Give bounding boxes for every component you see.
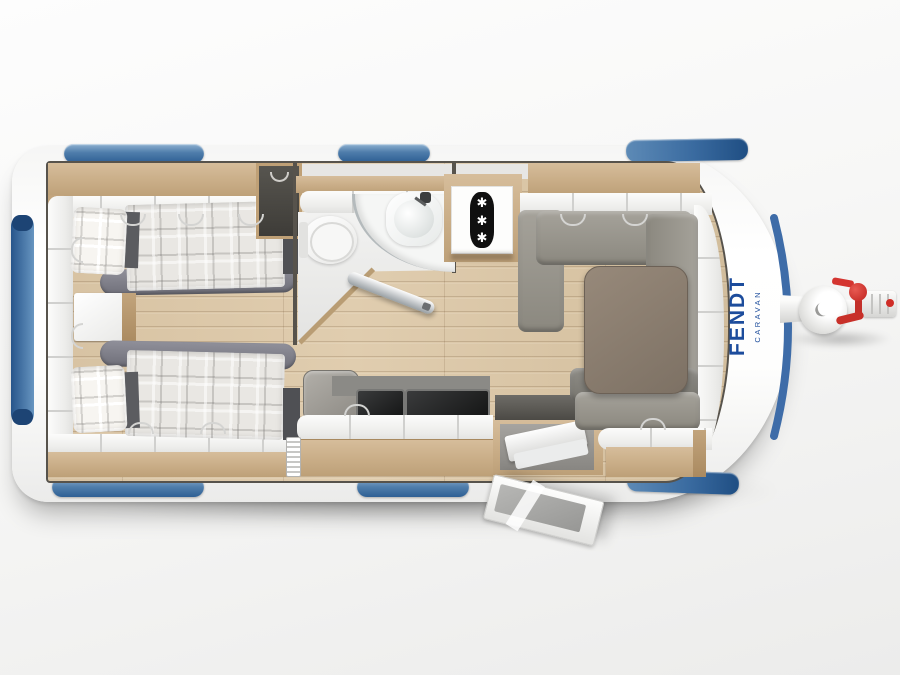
- kitchen-base-cabinet: [297, 439, 493, 476]
- dinette-wood-divider: [693, 430, 706, 477]
- brand-logo: FENDT CARAVAN: [726, 264, 762, 368]
- fridge-freezer-badge: ✱ ✱ ✱: [470, 192, 494, 248]
- bathroom-door-handle: [421, 302, 431, 311]
- dinette-overhead-cabinet: [528, 163, 700, 197]
- front-blue-trim: [768, 212, 804, 442]
- bedroom-overhead-cabinet: [48, 163, 260, 199]
- window-top-middle: [338, 144, 430, 162]
- dinette-bench-bottom: [575, 392, 700, 430]
- brand-name: FENDT: [726, 276, 750, 356]
- jockey-handle-knob: [849, 283, 867, 301]
- dinette-table: [584, 266, 688, 394]
- kitchen-locker-band: [297, 415, 493, 441]
- coupling-tip: [886, 299, 894, 307]
- snowflake-icon: ✱: [477, 231, 488, 244]
- window-top-right: [626, 138, 748, 162]
- toilet-seat: [310, 222, 354, 262]
- brand-subtitle: CARAVAN: [753, 290, 762, 343]
- dinette-base-cabinet-bottom: [606, 447, 696, 477]
- window-rear: [11, 215, 34, 425]
- sink-bowl: [394, 200, 434, 238]
- fridge-shadow: [451, 253, 513, 260]
- jockey-wheel-mount: [799, 286, 847, 334]
- bedroom-base-cabinet-bottom: [48, 452, 290, 477]
- hanger-icon: [270, 172, 289, 182]
- snowflake-icon: ✱: [477, 196, 488, 209]
- caravan-floor-plan: ✱ ✱ ✱ FENDT CARAVAN: [0, 0, 900, 675]
- bed-2-pillow: [70, 365, 127, 434]
- snowflake-icon: ✱: [477, 214, 488, 227]
- heater: [286, 437, 301, 477]
- headboard-shelf-rear: [48, 196, 73, 454]
- nightstand-side-panel: [122, 293, 136, 343]
- jockey-wheel-mark: [813, 299, 834, 319]
- toilet-tank: [299, 222, 308, 258]
